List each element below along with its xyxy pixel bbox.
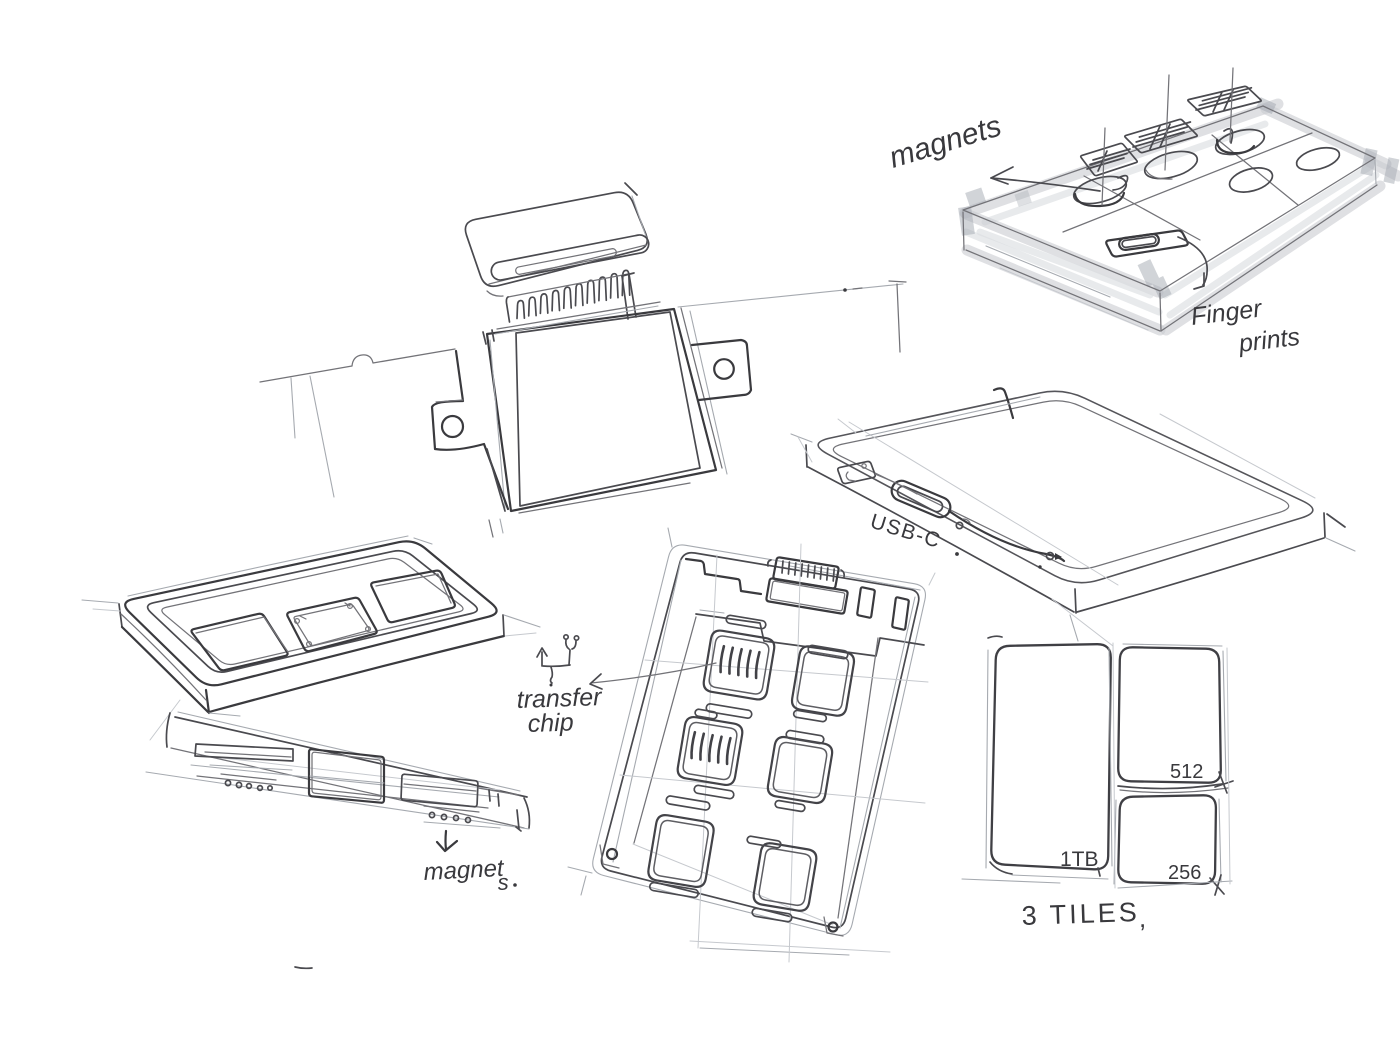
svg-text:prints: prints [1236,323,1301,358]
svg-text:256: 256 [1168,862,1201,884]
svg-text:chip: chip [527,708,574,738]
svg-text:,: , [1139,903,1146,933]
svg-text:512: 512 [1170,761,1203,783]
svg-text:USB-C: USB-C [868,510,944,553]
svg-text:magnet: magnet [423,855,506,886]
svg-text:3 TILES: 3 TILES [1021,897,1140,931]
svg-text:Finger: Finger [1189,294,1264,331]
svg-text:1TB: 1TB [1060,848,1099,871]
svg-text:magnets: magnets [885,109,1005,174]
svg-text:s: s [497,869,509,895]
